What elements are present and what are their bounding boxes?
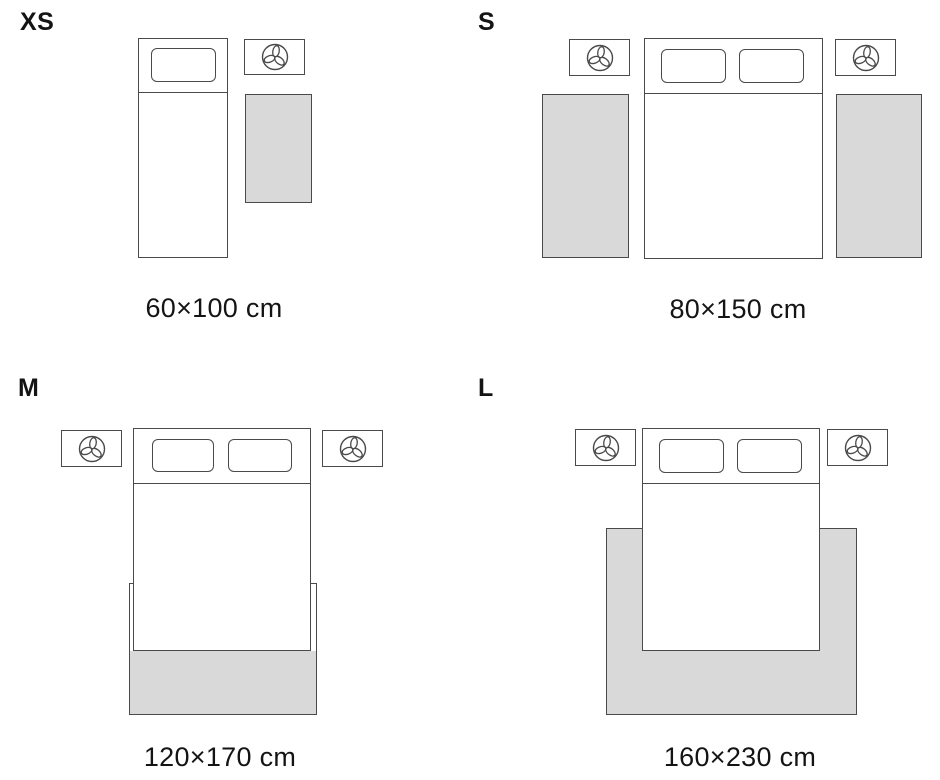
size-label-xs: XS [20, 10, 54, 35]
pillow [661, 49, 726, 83]
pillow [228, 439, 292, 472]
pillow [659, 439, 724, 473]
rug-m-exposed-area [130, 651, 316, 714]
lamp-icon [585, 43, 615, 73]
lamp-icon [260, 42, 290, 72]
nightstand [575, 429, 636, 466]
lamp-icon [338, 434, 368, 464]
size-label-m: M [18, 376, 39, 401]
rug-s-right [836, 94, 922, 258]
pillow [737, 439, 802, 473]
rug-xs [245, 94, 312, 203]
pillow [739, 49, 804, 83]
lamp-icon [843, 433, 873, 463]
lamp-icon [77, 434, 107, 464]
pillow [151, 48, 216, 82]
nightstand [827, 429, 888, 466]
lamp-icon [591, 433, 621, 463]
nightstand [61, 430, 122, 467]
size-label-l: L [478, 376, 494, 401]
nightstand [244, 39, 305, 75]
rug-dimensions-l: 160×230 cm [630, 744, 850, 771]
nightstand [322, 430, 383, 467]
lamp-icon [851, 43, 881, 73]
rug-s-left [542, 94, 629, 258]
rug-dimensions-s: 80×150 cm [628, 296, 848, 323]
nightstand [835, 39, 896, 76]
rug-dimensions-m: 120×170 cm [110, 744, 330, 771]
size-label-s: S [478, 10, 495, 35]
rug-size-guide-diagram: XS 60×100 cm S [0, 0, 940, 780]
rug-dimensions-xs: 60×100 cm [104, 295, 324, 322]
nightstand [569, 39, 630, 76]
pillow [152, 439, 214, 472]
